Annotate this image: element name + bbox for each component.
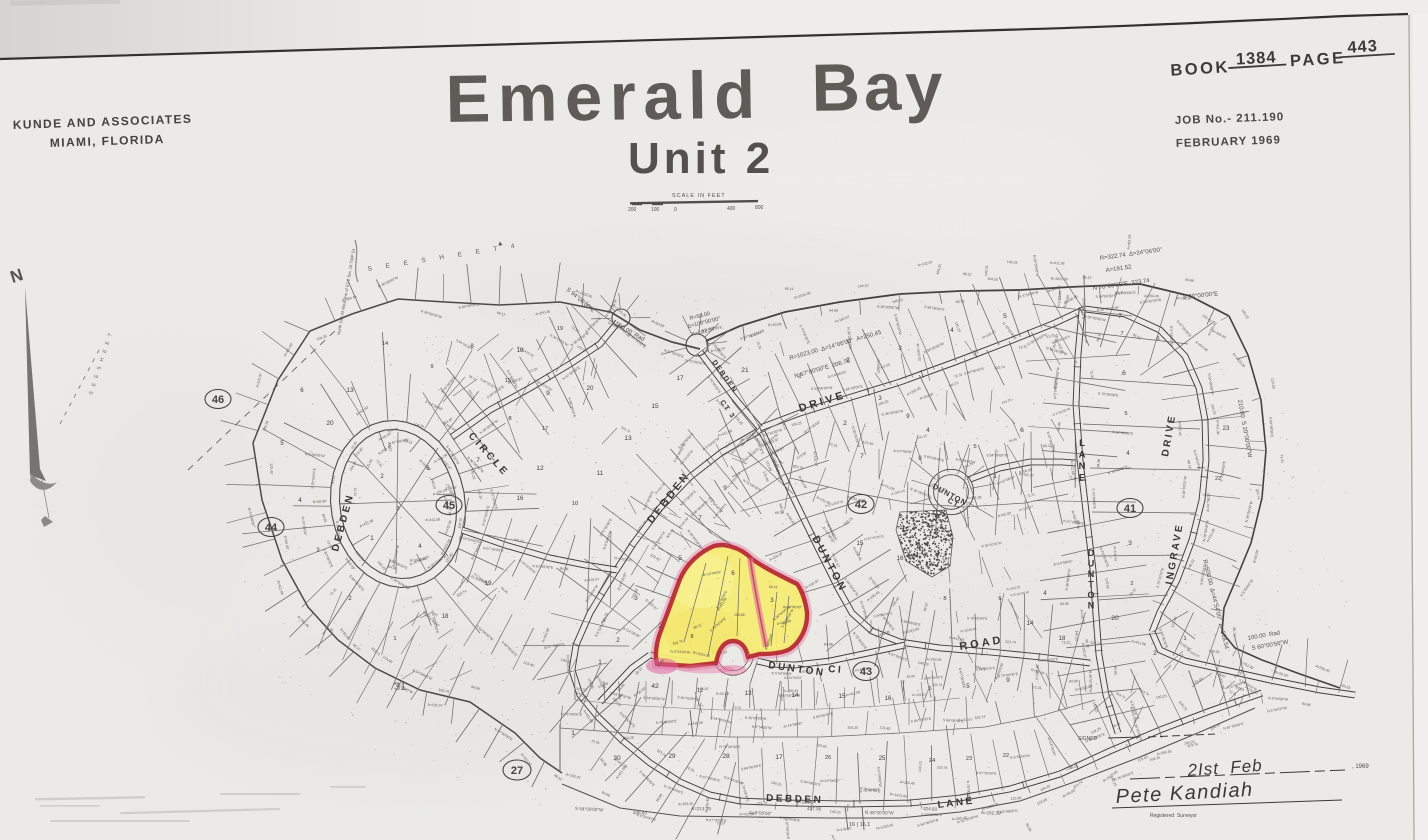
svg-text:A=250.45: A=250.45: [784, 689, 798, 693]
svg-text:44: 44: [265, 522, 278, 534]
svg-text:15: 15: [651, 403, 659, 410]
svg-text:66.11': 66.11': [956, 299, 966, 304]
svg-text:4: 4: [298, 497, 302, 504]
svg-text:CI: CI: [828, 664, 844, 676]
svg-text:323.74: 323.74: [937, 766, 948, 770]
svg-text:O: O: [1087, 590, 1094, 600]
svg-text:1: 1: [571, 730, 575, 737]
svg-text:20: 20: [326, 420, 334, 427]
svg-text:19: 19: [557, 326, 563, 332]
svg-text:N 76°00'00"E: N 76°00'00"E: [719, 745, 741, 749]
svg-text:S 70°00'00"E: S 70°00'00"E: [967, 616, 988, 620]
svg-text:Emerald: Emerald: [445, 58, 763, 137]
svg-text:324.60: 324.60: [923, 806, 938, 812]
svg-text:200: 200: [628, 207, 637, 213]
svg-text:84.86: 84.86: [907, 674, 916, 679]
svg-text:Bay: Bay: [811, 49, 947, 126]
svg-text:21: 21: [741, 367, 749, 374]
svg-text:323.74: 323.74: [932, 683, 942, 687]
svg-text:346.60: 346.60: [633, 810, 648, 816]
svg-text:1: 1: [393, 636, 396, 642]
svg-text:417.36: 417.36: [807, 806, 822, 812]
svg-text:16: 16: [517, 495, 524, 502]
svg-text:N 67°00'00"E: N 67°00'00"E: [706, 818, 728, 823]
svg-text:20: 20: [587, 385, 594, 392]
svg-text:14: 14: [382, 341, 388, 347]
svg-text:▲: ▲: [496, 240, 504, 248]
svg-text:123.45': 123.45': [269, 463, 273, 475]
svg-text:84.86: 84.86: [1069, 679, 1078, 683]
svg-text:SIGNED: SIGNED: [1078, 736, 1098, 742]
svg-text:9: 9: [1006, 677, 1010, 684]
svg-text:2: 2: [1153, 650, 1157, 657]
svg-text:2: 2: [658, 623, 662, 630]
svg-text:D: D: [1088, 548, 1095, 558]
svg-text:A=250.45: A=250.45: [926, 658, 941, 662]
svg-text:SCALE IN FEET: SCALE IN FEET: [672, 193, 726, 199]
svg-text:7: 7: [1118, 313, 1122, 320]
svg-text:A=411.08: A=411.08: [967, 495, 982, 500]
svg-text:123.45': 123.45': [734, 613, 745, 617]
svg-text:66.11': 66.11': [785, 287, 795, 291]
svg-text:2: 2: [843, 420, 847, 427]
svg-text:5: 5: [678, 555, 682, 562]
svg-text:A=102.97: A=102.97: [1113, 546, 1118, 561]
svg-text:1: 1: [370, 535, 374, 542]
svg-text:E: E: [1079, 473, 1085, 484]
svg-text:6: 6: [1020, 427, 1024, 434]
svg-text:Δ=14°06'00": Δ=14°06'00": [784, 676, 803, 680]
svg-text:DEBDEN: DEBDEN: [766, 793, 824, 806]
svg-text:11: 11: [597, 470, 604, 477]
svg-text:17: 17: [775, 754, 783, 761]
svg-text:3: 3: [396, 506, 399, 512]
svg-text:13: 13: [624, 435, 632, 442]
svg-text:84.86: 84.86: [560, 567, 569, 572]
svg-text:17: 17: [676, 375, 684, 382]
svg-text:N 76°00'00"E: N 76°00'00"E: [561, 712, 583, 717]
svg-text:72.31: 72.31: [1062, 640, 1071, 644]
svg-text:2: 2: [1130, 581, 1133, 587]
svg-text:R=50.00': R=50.00': [716, 692, 730, 696]
svg-text:25: 25: [879, 755, 886, 762]
svg-text:12: 12: [536, 465, 544, 472]
svg-text:, 1969: , 1969: [1352, 764, 1369, 770]
svg-text:A=213.79: A=213.79: [691, 806, 711, 811]
svg-text:2: 2: [616, 637, 620, 644]
svg-text:66.11': 66.11': [769, 585, 778, 589]
svg-text:8: 8: [690, 634, 693, 640]
svg-text:84.86: 84.86: [824, 643, 833, 647]
svg-text:16: 16: [897, 555, 904, 562]
svg-text:L: L: [1079, 438, 1085, 449]
svg-text:R=50.00': R=50.00': [876, 359, 880, 373]
svg-text:66.11': 66.11': [1115, 290, 1125, 295]
svg-text:66.11': 66.11': [1083, 275, 1093, 279]
svg-text:A=162.39: A=162.39: [981, 810, 1001, 816]
svg-text:5: 5: [1003, 313, 1007, 320]
svg-text:26: 26: [825, 755, 831, 761]
svg-text:T: T: [1088, 580, 1094, 590]
svg-text:4: 4: [1126, 450, 1130, 457]
svg-text:15: 15: [857, 540, 864, 547]
svg-text:1: 1: [993, 473, 997, 480]
svg-text:27: 27: [511, 765, 523, 777]
svg-text:A=250.45: A=250.45: [1178, 421, 1182, 436]
svg-text:Δ=14°06'00": Δ=14°06'00": [820, 779, 840, 783]
svg-text:5: 5: [966, 683, 970, 690]
svg-text:140.23: 140.23: [918, 761, 923, 772]
svg-text:4: 4: [950, 327, 954, 334]
svg-text:123.45': 123.45': [1011, 796, 1023, 801]
svg-text:3: 3: [898, 345, 902, 352]
svg-text:4: 4: [926, 427, 930, 434]
svg-text:9: 9: [430, 364, 433, 370]
svg-text:A=411.08: A=411.08: [1215, 420, 1220, 435]
svg-text:443: 443: [1347, 37, 1379, 57]
svg-text:29: 29: [668, 753, 676, 760]
svg-text:S 54°06'00"W: S 54°06'00"W: [986, 454, 1008, 458]
svg-text:1: 1: [598, 659, 602, 666]
svg-text:S 70°00'00"E: S 70°00'00"E: [921, 813, 942, 817]
svg-text:A=102.97: A=102.97: [958, 718, 972, 722]
svg-text:A=411.08: A=411.08: [425, 518, 440, 523]
svg-text:BOOK: BOOK: [1170, 58, 1230, 80]
svg-text:23: 23: [1223, 425, 1230, 432]
svg-text:46: 46: [212, 394, 224, 406]
svg-text:N 48°00'00"W: N 48°00'00"W: [865, 810, 894, 816]
svg-text:N 5°54'00"W: N 5°54'00"W: [1169, 326, 1173, 347]
svg-text:N 67°00'00"E: N 67°00'00"E: [1082, 298, 1087, 320]
svg-text:66.11': 66.11': [963, 272, 973, 277]
svg-text:100: 100: [651, 207, 660, 213]
svg-text:800: 800: [755, 205, 764, 211]
svg-text:6: 6: [731, 570, 735, 577]
svg-text:A=102.97: A=102.97: [912, 693, 926, 697]
svg-text:42: 42: [651, 683, 659, 690]
svg-text:22: 22: [1003, 753, 1009, 759]
svg-text:24: 24: [929, 758, 936, 764]
svg-text:N 67°00'00"E: N 67°00'00"E: [976, 771, 998, 776]
svg-text:13: 13: [346, 387, 354, 394]
svg-text:A: A: [1079, 450, 1086, 461]
svg-text:N: N: [1088, 601, 1095, 611]
svg-text:140.23: 140.23: [1075, 630, 1079, 641]
svg-text:17: 17: [542, 426, 548, 432]
svg-text:N: N: [1079, 461, 1086, 472]
svg-text:84.86: 84.86: [1113, 666, 1117, 675]
svg-text:A=411.08: A=411.08: [1050, 261, 1065, 266]
svg-text:R=1023.00: R=1023.00: [797, 800, 814, 804]
svg-text:16: 16: [885, 695, 892, 702]
svg-text:123.45': 123.45': [698, 687, 709, 691]
svg-text:7: 7: [698, 515, 702, 522]
svg-text:4: 4: [418, 543, 422, 550]
svg-text:13: 13: [744, 690, 752, 697]
svg-text:323.74: 323.74: [1005, 640, 1016, 645]
svg-text:104.25: 104.25: [847, 726, 858, 730]
svg-text:23: 23: [966, 756, 972, 762]
svg-text:84.86: 84.86: [829, 309, 838, 313]
svg-text:N: N: [1088, 569, 1095, 579]
svg-text:U: U: [1088, 559, 1095, 569]
svg-text:7: 7: [860, 453, 864, 460]
svg-text:400: 400: [727, 206, 736, 212]
svg-text:3: 3: [1128, 540, 1132, 547]
svg-text:PAGE: PAGE: [1290, 49, 1347, 70]
svg-text:Unit 2: Unit 2: [628, 134, 774, 183]
svg-text:2: 2: [348, 595, 352, 602]
svg-text:72.31: 72.31: [733, 706, 741, 710]
svg-text:18: 18: [442, 614, 449, 620]
svg-text:10: 10: [572, 501, 578, 507]
svg-text:72.31: 72.31: [353, 487, 357, 496]
svg-text:72.31: 72.31: [1033, 686, 1042, 691]
svg-text:5: 5: [1124, 411, 1127, 417]
svg-text:16 | 16.1: 16 | 16.1: [849, 822, 870, 828]
svg-text:84.86: 84.86: [1060, 602, 1069, 606]
svg-text:41: 41: [1124, 503, 1136, 515]
svg-text:6: 6: [998, 596, 1001, 602]
svg-text:7: 7: [1120, 331, 1123, 337]
svg-text:Registered Surveyor: Registered Surveyor: [1150, 813, 1197, 819]
svg-text:N 36°00'00"W: N 36°00'00"W: [1088, 671, 1092, 694]
svg-text:0: 0: [674, 207, 677, 213]
svg-text:20: 20: [1111, 615, 1119, 622]
svg-text:1: 1: [1183, 636, 1186, 642]
